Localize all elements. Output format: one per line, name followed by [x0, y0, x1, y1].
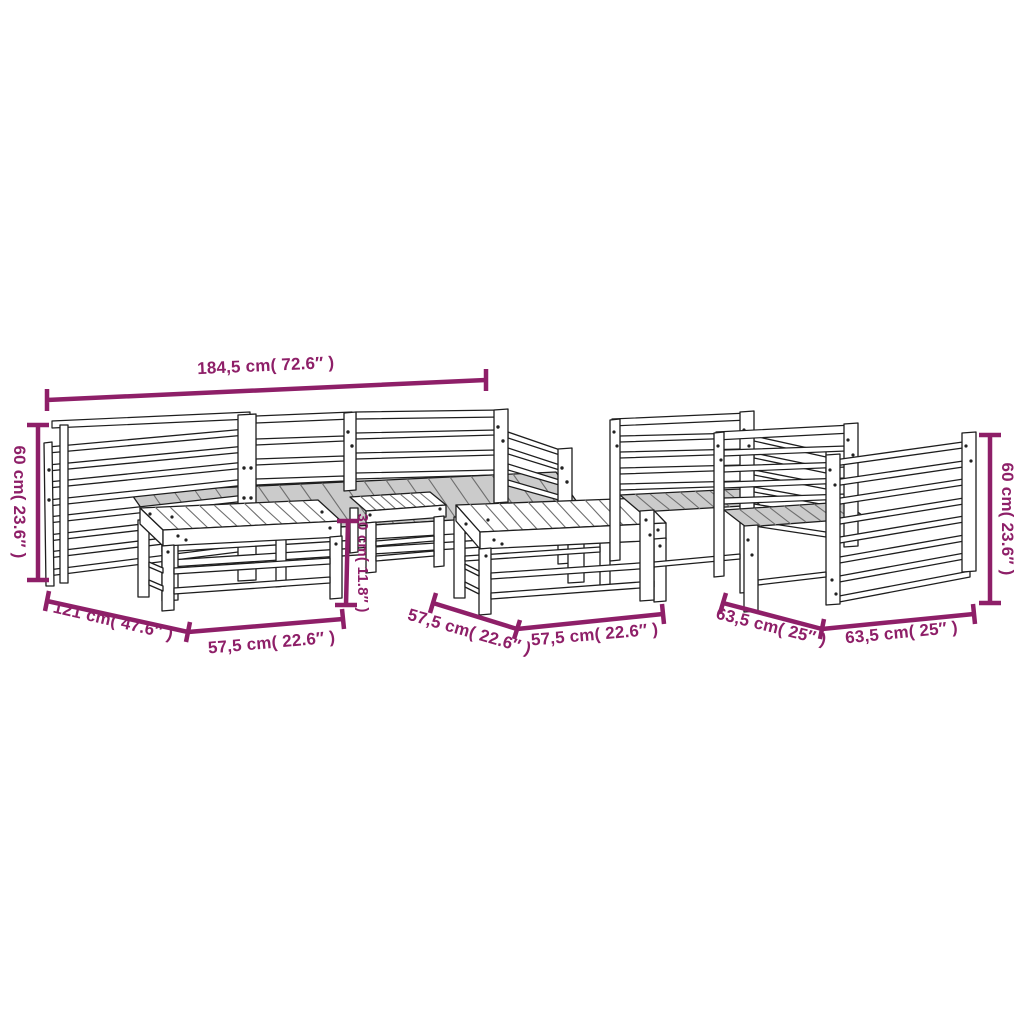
product-dimension-diagram: 184,5 cm( 72.6″ ) 60 cm( 23.6″ ) 60 cm( …: [0, 0, 1024, 1024]
dimension-label-footstool-height: 30 cm( 11.8″ ): [354, 513, 371, 612]
dimension-label-left-height: 60 cm( 23.6″ ): [10, 445, 29, 558]
dimension-chair-width: 63,5 cm( 25″ ): [822, 604, 975, 647]
dimension-chair-depth: 63,5 cm( 25″ ): [714, 593, 828, 650]
dimension-total-width: 184,5 cm( 72.6″ ): [47, 353, 486, 411]
dimension-label-chair-depth: 63,5 cm( 25″ ): [714, 604, 828, 650]
dimension-label-right-height: 60 cm( 23.6″ ): [998, 462, 1017, 575]
armchair-front-illustration: [714, 423, 976, 612]
dimension-footstool-depth-center: 57,5 cm( 22.6″ ): [406, 593, 534, 658]
dimension-label-footstool-width-left: 57,5 cm( 22.6″ ): [207, 627, 336, 657]
diagram-canvas: 184,5 cm( 72.6″ ) 60 cm( 23.6″ ) 60 cm( …: [0, 0, 1024, 1024]
dimension-left-height: 60 cm( 23.6″ ): [10, 425, 49, 580]
dimension-line: [979, 435, 1001, 603]
dimension-line: [47, 369, 486, 411]
dimension-right-height: 60 cm( 23.6″ ): [979, 435, 1017, 603]
dimension-label-total-width: 184,5 cm( 72.6″ ): [197, 353, 335, 378]
dimension-footstool-width-left: 57,5 cm( 22.6″ ): [188, 609, 344, 658]
dimension-footstool-width-center: 57,5 cm( 22.6″ ): [517, 604, 664, 650]
dimension-label-corner-depth: 121 cm( 47.6″ ): [51, 598, 175, 644]
dimension-label-chair-width: 63,5 cm( 25″ ): [844, 618, 958, 648]
